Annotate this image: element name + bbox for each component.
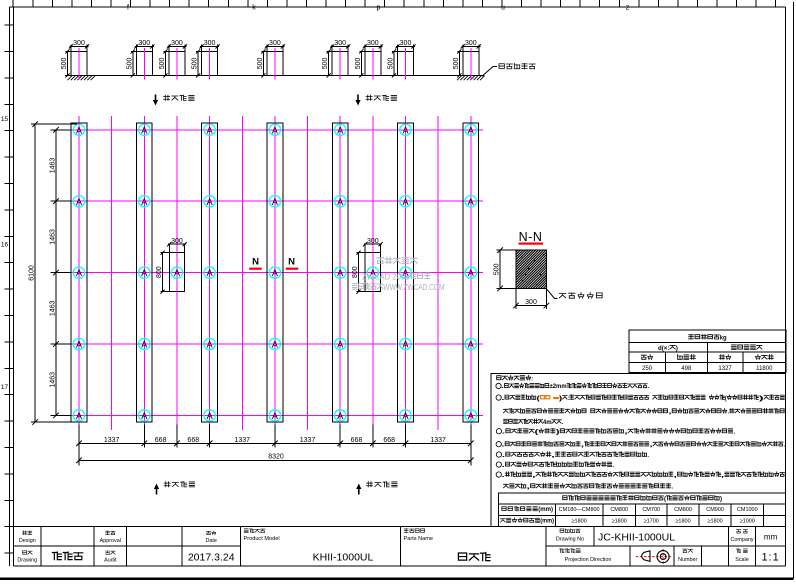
svg-text:668: 668 (187, 437, 199, 444)
svg-text:(mm): (mm) (540, 519, 554, 525)
svg-text:1337: 1337 (430, 437, 446, 444)
svg-text:Parts Name: Parts Name (404, 536, 434, 542)
svg-text:Date: Date (206, 538, 217, 544)
svg-text:800: 800 (156, 266, 163, 278)
svg-text:A: A (272, 125, 279, 136)
svg-text:A: A (76, 125, 83, 136)
svg-text:1327: 1327 (718, 366, 732, 372)
svg-text:N-N: N-N (519, 230, 543, 244)
svg-text:1463: 1463 (50, 158, 57, 174)
svg-text:Audit: Audit (104, 557, 117, 563)
svg-text:.: . (502, 472, 506, 479)
svg-text:A: A (207, 340, 214, 351)
svg-text:668: 668 (351, 437, 363, 444)
svg-text:,: , (721, 472, 725, 479)
svg-text:.: . (783, 442, 785, 449)
svg-text:15: 15 (1, 116, 9, 123)
svg-text:CM180—CM800: CM180—CM800 (559, 507, 600, 513)
svg-text:1337: 1337 (300, 437, 316, 444)
svg-text:1463: 1463 (50, 300, 57, 316)
svg-text:.: . (502, 462, 506, 469)
svg-text:≥1800: ≥1800 (707, 519, 722, 525)
svg-text:A: A (468, 197, 475, 208)
svg-text:A: A (337, 268, 344, 279)
svg-text:800: 800 (352, 266, 359, 278)
svg-text:300: 300 (465, 40, 477, 47)
svg-text:KHII-1000UL: KHII-1000UL (313, 552, 374, 564)
svg-text:): ) (759, 395, 764, 402)
svg-text:300: 300 (525, 299, 537, 306)
svg-text:d(×:: d(×: (658, 345, 669, 352)
svg-text:Design: Design (19, 538, 36, 544)
svg-text::: : (568, 395, 570, 402)
svg-text:Scale: Scale (735, 557, 749, 563)
svg-text:1337: 1337 (234, 437, 250, 444)
svg-text:≥1800: ≥1800 (675, 519, 690, 525)
svg-text:CM700: CM700 (642, 507, 660, 513)
svg-text:4m: 4m (543, 419, 552, 426)
svg-text:≥1800: ≥1800 (572, 519, 587, 525)
svg-text:CM800: CM800 (674, 507, 692, 513)
svg-text:2017.3.24: 2017.3.24 (188, 552, 235, 564)
svg-text:A: A (403, 411, 410, 422)
svg-text:±2mm: ±2mm (549, 383, 567, 390)
svg-text:300: 300 (171, 238, 183, 245)
svg-text:500: 500 (322, 57, 329, 69)
svg-text:.: . (671, 484, 673, 491)
svg-text:≥1000: ≥1000 (740, 519, 755, 525)
svg-text:JC-KHII-1000UL: JC-KHII-1000UL (598, 532, 675, 544)
svg-text:A: A (207, 268, 214, 279)
svg-text:A: A (272, 411, 279, 422)
svg-text:≥1800: ≥1800 (612, 519, 627, 525)
svg-text:300: 300 (269, 40, 281, 47)
svg-text:.: . (648, 383, 650, 390)
svg-text:17: 17 (1, 384, 9, 391)
svg-text:A: A (468, 411, 475, 422)
svg-text:A: A (272, 340, 279, 351)
svg-text:Projection Direction: Projection Direction (565, 557, 612, 563)
svg-text:.: . (502, 452, 506, 459)
svg-text:u: u (501, 5, 505, 12)
svg-text:p: p (377, 5, 381, 12)
svg-text:Drawing No: Drawing No (556, 537, 584, 543)
svg-text:668: 668 (383, 437, 395, 444)
svg-text:.: . (562, 419, 564, 426)
svg-text:500: 500 (355, 57, 362, 69)
svg-text:300: 300 (367, 238, 379, 245)
svg-text:1:1: 1:1 (761, 552, 779, 564)
svg-text:A: A (337, 411, 344, 422)
svg-text:A: A (468, 125, 475, 136)
svg-text:300: 300 (367, 40, 379, 47)
svg-text:,: , (532, 472, 536, 479)
svg-text:): ) (559, 395, 562, 402)
svg-text:1463: 1463 (50, 372, 57, 388)
svg-text:11800: 11800 (756, 366, 773, 372)
svg-text:N: N (288, 257, 295, 268)
svg-text:A: A (468, 340, 475, 351)
svg-text:,: , (649, 442, 653, 449)
svg-text:16: 16 (1, 242, 9, 249)
svg-text:300: 300 (400, 40, 412, 47)
svg-text:1337: 1337 (104, 437, 120, 444)
svg-text:,: , (527, 484, 531, 491)
svg-text:500: 500 (159, 57, 166, 69)
svg-text:≥1700: ≥1700 (644, 519, 659, 525)
svg-text:A: A (207, 125, 214, 136)
svg-text:.: . (647, 452, 649, 459)
svg-text:500: 500 (192, 57, 199, 69)
svg-text:.: . (501, 395, 504, 402)
svg-text:A: A (403, 125, 410, 136)
svg-text:,: , (551, 452, 555, 459)
svg-text:WWW.ZWCAD.COM: WWW.ZWCAD.COM (383, 282, 444, 292)
svg-text::: : (531, 376, 533, 383)
svg-text:Company: Company (730, 537, 753, 543)
svg-text:z: z (626, 5, 630, 12)
svg-text:A: A (272, 197, 279, 208)
svg-text:.: . (502, 429, 506, 436)
svg-text:A: A (174, 268, 181, 279)
svg-text:A: A (141, 125, 148, 136)
svg-text:,: , (581, 442, 585, 449)
svg-text:CM1000: CM1000 (737, 507, 758, 513)
svg-text:300: 300 (138, 40, 150, 47)
svg-text:,: , (674, 472, 678, 479)
svg-text:A: A (403, 197, 410, 208)
svg-text:8320: 8320 (268, 454, 284, 461)
svg-text:500: 500 (61, 57, 68, 69)
svg-text:300: 300 (204, 40, 216, 47)
svg-text:1463: 1463 (50, 229, 57, 245)
svg-text:.: . (612, 462, 614, 469)
svg-text:CM900: CM900 (706, 507, 724, 513)
svg-text:A: A (468, 268, 475, 279)
svg-text:.: . (733, 429, 735, 436)
svg-text:CM800: CM800 (610, 507, 628, 513)
svg-text:): ) (720, 495, 722, 502)
svg-text:): ) (676, 345, 678, 352)
svg-text:,: , (668, 409, 672, 416)
svg-text:500: 500 (453, 57, 460, 69)
svg-text:A: A (141, 411, 148, 422)
svg-text:500: 500 (126, 57, 133, 69)
svg-text:A: A (337, 340, 344, 351)
svg-text:A: A (207, 411, 214, 422)
svg-text:300: 300 (73, 40, 85, 47)
svg-text:500: 500 (388, 57, 395, 69)
svg-text:): ) (556, 429, 560, 436)
svg-text:kg: kg (720, 335, 727, 342)
svg-text:A: A (76, 411, 83, 422)
svg-text:Drawing: Drawing (17, 557, 37, 563)
svg-text:ZWCAD 2008: ZWCAD 2008 (362, 271, 410, 281)
svg-text:.: . (727, 409, 729, 416)
svg-text:500: 500 (494, 263, 501, 275)
svg-text:.: . (501, 383, 504, 390)
svg-text:A: A (337, 125, 344, 136)
svg-text:250: 250 (642, 366, 653, 372)
svg-text:668: 668 (155, 437, 167, 444)
svg-text:6100: 6100 (29, 265, 36, 281)
svg-text:(mm): (mm) (538, 507, 553, 513)
svg-text:A: A (76, 268, 83, 279)
svg-text:.: . (501, 442, 505, 449)
svg-text:A: A (337, 197, 344, 208)
svg-text:Approval: Approval (100, 538, 121, 544)
svg-text:500: 500 (257, 57, 264, 69)
svg-text:A: A (272, 268, 279, 279)
svg-text:f: f (127, 5, 129, 12)
svg-text:A: A (76, 197, 83, 208)
svg-text:A: A (141, 197, 148, 208)
svg-text:300: 300 (334, 40, 346, 47)
svg-text:A: A (141, 340, 148, 351)
svg-text:300: 300 (171, 40, 183, 47)
svg-text:,: , (624, 429, 628, 436)
svg-text:A: A (403, 340, 410, 351)
svg-text:Product Model: Product Model (244, 536, 280, 542)
svg-text:498: 498 (681, 366, 692, 372)
svg-text:mm: mm (764, 533, 778, 542)
svg-text:N: N (252, 257, 259, 268)
svg-text:A: A (207, 197, 214, 208)
svg-text:A: A (76, 340, 83, 351)
svg-text:Number: Number (678, 557, 697, 563)
svg-text:k: k (252, 5, 256, 12)
svg-text:A: A (141, 268, 148, 279)
